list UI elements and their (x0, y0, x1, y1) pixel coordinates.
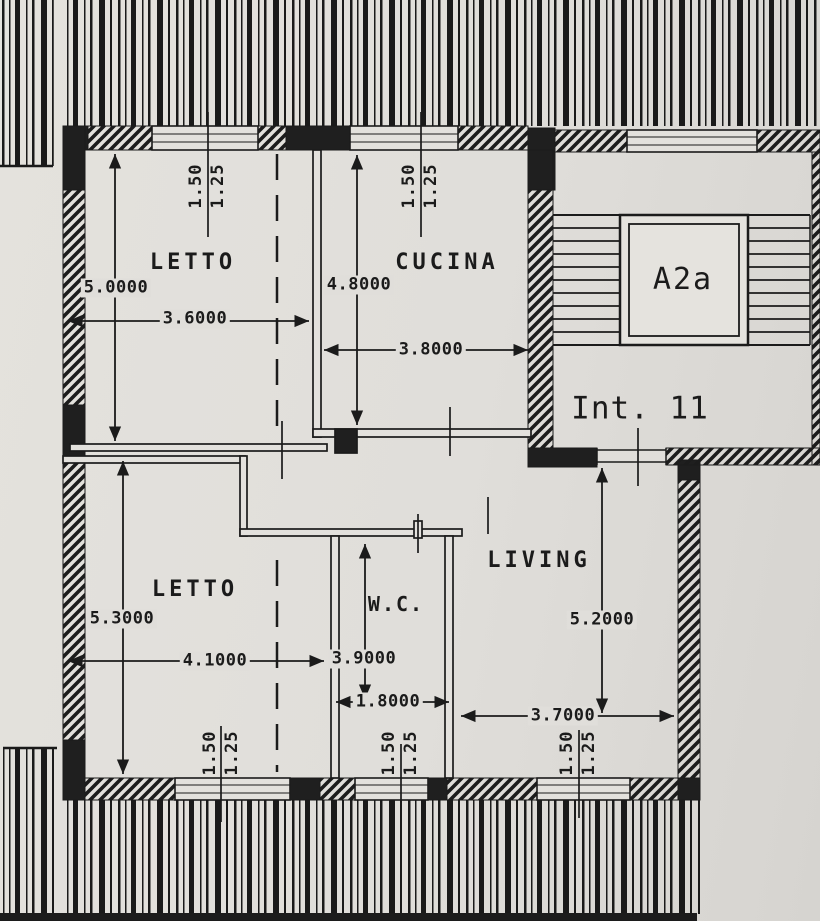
dim-letto-1-width: 3.6000 (160, 310, 230, 329)
floor-plan: LETTO 5.0000 3.6000 1.50 1.25 CUCINA 4.8… (0, 0, 820, 921)
window-letto-1 (152, 126, 258, 150)
unit-label: Int. 11 (568, 393, 712, 426)
window-width-value: 1.50 (378, 731, 400, 776)
dim-living-depth: 5.2000 (567, 611, 637, 630)
room-label-cucina: CUCINA (395, 252, 498, 274)
window-dim-letto-2: 1.50 1.25 (199, 731, 243, 776)
window-width-value: 1.50 (556, 731, 578, 776)
dim-cucina-width: 3.8000 (396, 341, 466, 360)
window-height-value: 1.25 (207, 164, 229, 209)
dim-letto-2-depth: 5.3000 (87, 610, 157, 629)
window-width-value: 1.50 (199, 731, 221, 776)
scan-edge-bar (0, 913, 697, 921)
window-height-value: 1.25 (578, 731, 600, 776)
window-wc (355, 778, 428, 800)
room-label-letto-2: LETTO (152, 579, 238, 601)
dim-cucina-depth: 4.8000 (324, 276, 394, 295)
interior-walls (63, 150, 531, 778)
entry-door-opening (597, 449, 666, 463)
window-dim-cucina: 1.50 1.25 (398, 164, 442, 209)
window-height-value: 1.25 (420, 164, 442, 209)
window-width-value: 1.50 (398, 164, 420, 209)
pillar (335, 429, 357, 453)
stairwell-right-wall (812, 152, 820, 465)
room-label-wc: W.C. (365, 593, 427, 615)
dim-wc-depth: 3.9000 (329, 650, 399, 669)
window-width-value: 1.50 (185, 164, 207, 209)
dim-letto-2-width: 4.1000 (180, 652, 250, 671)
elevator-label: A2a (650, 264, 716, 296)
dim-wc-width: 1.8000 (353, 693, 423, 712)
window-living (537, 778, 630, 800)
dim-living-width: 3.7000 (528, 707, 598, 726)
window-cucina (350, 126, 458, 150)
window-height-value: 1.25 (221, 731, 243, 776)
floor-plan-drawing (0, 0, 820, 921)
window-height-value: 1.25 (400, 731, 422, 776)
room-label-living: LIVING (487, 550, 590, 572)
window-dim-living: 1.50 1.25 (556, 731, 600, 776)
room-label-letto-1: LETTO (150, 252, 236, 274)
window-letto-2 (175, 778, 290, 800)
window-dim-wc: 1.50 1.25 (378, 731, 422, 776)
window-dim-letto-1: 1.50 1.25 (185, 164, 229, 209)
dim-letto-1-depth: 5.0000 (81, 279, 151, 298)
